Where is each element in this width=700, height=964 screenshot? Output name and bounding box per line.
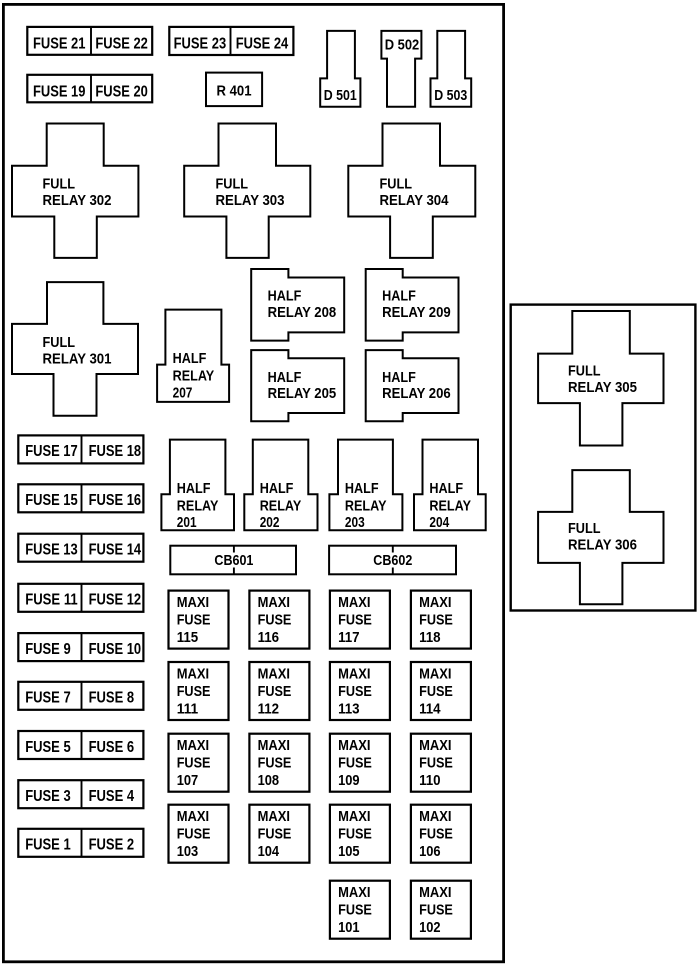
svg-text:CB602: CB602	[373, 552, 412, 569]
svg-text:MAXI: MAXI	[177, 737, 209, 754]
svg-text:MAXI: MAXI	[338, 594, 370, 611]
svg-text:FUSE 20: FUSE 20	[95, 84, 148, 101]
svg-text:RELAY 208: RELAY 208	[268, 304, 337, 321]
svg-text:112: 112	[258, 700, 280, 717]
svg-text:RELAY 301: RELAY 301	[43, 351, 112, 368]
svg-text:FUSE: FUSE	[338, 902, 372, 919]
svg-text:D 501: D 501	[324, 87, 357, 104]
svg-text:MAXI: MAXI	[419, 808, 451, 825]
svg-text:107: 107	[177, 772, 199, 789]
svg-text:FUSE 5: FUSE 5	[25, 739, 71, 756]
svg-text:MAXI: MAXI	[177, 666, 209, 683]
svg-text:RELAY 305: RELAY 305	[568, 379, 637, 396]
svg-text:109: 109	[338, 772, 360, 789]
svg-text:113: 113	[338, 700, 360, 717]
svg-text:FUSE 22: FUSE 22	[95, 35, 148, 52]
svg-text:RELAY: RELAY	[345, 497, 387, 514]
svg-text:202: 202	[260, 514, 280, 531]
svg-text:RELAY: RELAY	[429, 497, 471, 514]
svg-text:FUSE 1: FUSE 1	[25, 837, 71, 854]
svg-text:201: 201	[177, 514, 197, 531]
svg-text:FUSE 15: FUSE 15	[25, 492, 78, 509]
svg-text:FUSE: FUSE	[419, 902, 453, 919]
svg-text:FUSE: FUSE	[338, 683, 372, 700]
svg-text:D 502: D 502	[385, 36, 420, 53]
svg-text:MAXI: MAXI	[419, 884, 451, 901]
svg-text:HALF: HALF	[382, 369, 416, 386]
svg-text:RELAY 209: RELAY 209	[382, 304, 451, 321]
svg-text:FUSE: FUSE	[177, 683, 211, 700]
svg-text:MAXI: MAXI	[338, 737, 370, 754]
svg-text:117: 117	[338, 629, 360, 646]
svg-text:MAXI: MAXI	[177, 594, 209, 611]
svg-text:MAXI: MAXI	[258, 808, 290, 825]
svg-text:108: 108	[258, 772, 280, 789]
svg-text:MAXI: MAXI	[338, 884, 370, 901]
svg-text:HALF: HALF	[429, 480, 463, 497]
svg-text:FUSE 2: FUSE 2	[89, 837, 135, 854]
svg-text:203: 203	[345, 514, 365, 531]
svg-text:HALF: HALF	[268, 369, 302, 386]
svg-text:FUSE: FUSE	[419, 755, 453, 772]
svg-text:MAXI: MAXI	[338, 666, 370, 683]
svg-text:FUSE 11: FUSE 11	[25, 592, 78, 609]
svg-text:FUSE 18: FUSE 18	[89, 443, 142, 460]
svg-text:FUSE 16: FUSE 16	[89, 492, 142, 509]
svg-text:RELAY 302: RELAY 302	[43, 192, 112, 209]
svg-text:RELAY 303: RELAY 303	[216, 192, 285, 209]
svg-text:116: 116	[258, 629, 280, 646]
svg-text:104: 104	[258, 843, 280, 860]
svg-text:FUSE: FUSE	[419, 683, 453, 700]
svg-text:FUSE: FUSE	[258, 683, 292, 700]
svg-text:MAXI: MAXI	[258, 666, 290, 683]
svg-text:FUSE: FUSE	[419, 612, 453, 629]
svg-text:110: 110	[419, 772, 441, 789]
svg-text:FUSE 6: FUSE 6	[89, 739, 135, 756]
svg-text:RELAY: RELAY	[177, 497, 219, 514]
svg-text:D 503: D 503	[434, 87, 467, 104]
svg-text:FUSE: FUSE	[177, 612, 211, 629]
svg-text:FUSE 8: FUSE 8	[89, 690, 135, 707]
svg-text:MAXI: MAXI	[177, 808, 209, 825]
svg-text:RELAY: RELAY	[173, 367, 215, 384]
svg-text:FUSE 13: FUSE 13	[25, 542, 78, 559]
svg-text:101: 101	[338, 919, 360, 936]
svg-text:FUSE: FUSE	[258, 612, 292, 629]
svg-text:MAXI: MAXI	[419, 594, 451, 611]
svg-text:HALF: HALF	[173, 350, 207, 367]
svg-text:RELAY 205: RELAY 205	[268, 385, 337, 402]
svg-text:207: 207	[173, 384, 193, 401]
svg-text:FUSE 23: FUSE 23	[174, 35, 227, 52]
svg-text:105: 105	[338, 843, 360, 860]
svg-text:FUSE: FUSE	[338, 612, 372, 629]
svg-text:FUSE 17: FUSE 17	[25, 443, 77, 460]
svg-text:102: 102	[419, 919, 441, 936]
svg-text:111: 111	[177, 700, 199, 717]
svg-text:114: 114	[419, 700, 441, 717]
svg-text:HALF: HALF	[345, 480, 379, 497]
svg-text:FUSE: FUSE	[258, 755, 292, 772]
svg-text:FUSE 19: FUSE 19	[33, 84, 86, 101]
svg-text:FUSE: FUSE	[177, 755, 211, 772]
svg-text:R 401: R 401	[217, 82, 252, 99]
svg-text:MAXI: MAXI	[258, 594, 290, 611]
svg-text:FUSE 10: FUSE 10	[89, 641, 142, 658]
svg-text:115: 115	[177, 629, 199, 646]
svg-text:FUSE 4: FUSE 4	[89, 788, 135, 805]
svg-text:HALF: HALF	[177, 480, 211, 497]
svg-text:FULL: FULL	[216, 176, 249, 193]
svg-text:FULL: FULL	[43, 176, 76, 193]
svg-text:FUSE 14: FUSE 14	[89, 542, 142, 559]
svg-text:FUSE: FUSE	[419, 826, 453, 843]
svg-text:MAXI: MAXI	[419, 737, 451, 754]
svg-text:MAXI: MAXI	[338, 808, 370, 825]
svg-text:RELAY 304: RELAY 304	[380, 192, 450, 209]
svg-text:CB601: CB601	[214, 552, 253, 569]
svg-text:FULL: FULL	[43, 334, 76, 351]
svg-text:FUSE 7: FUSE 7	[25, 690, 70, 707]
svg-text:HALF: HALF	[260, 480, 294, 497]
svg-text:FUSE: FUSE	[338, 755, 372, 772]
svg-text:118: 118	[419, 629, 441, 646]
svg-text:FULL: FULL	[568, 363, 601, 380]
svg-text:FULL: FULL	[380, 176, 413, 193]
svg-text:RELAY 206: RELAY 206	[382, 385, 451, 402]
svg-text:HALF: HALF	[382, 287, 416, 304]
svg-text:FUSE 21: FUSE 21	[33, 35, 86, 52]
svg-text:FUSE: FUSE	[258, 826, 292, 843]
svg-text:MAXI: MAXI	[419, 666, 451, 683]
svg-text:103: 103	[177, 843, 199, 860]
svg-text:FUSE 3: FUSE 3	[25, 788, 71, 805]
svg-text:HALF: HALF	[268, 287, 302, 304]
svg-text:MAXI: MAXI	[258, 737, 290, 754]
svg-text:FULL: FULL	[568, 520, 601, 537]
svg-text:FUSE 9: FUSE 9	[25, 641, 71, 658]
svg-text:RELAY: RELAY	[260, 497, 302, 514]
svg-text:204: 204	[429, 514, 449, 531]
svg-text:FUSE 24: FUSE 24	[236, 35, 289, 52]
svg-text:RELAY 306: RELAY 306	[568, 537, 637, 554]
svg-text:106: 106	[419, 843, 441, 860]
svg-text:FUSE 12: FUSE 12	[89, 592, 142, 609]
svg-text:FUSE: FUSE	[177, 826, 211, 843]
svg-text:FUSE: FUSE	[338, 826, 372, 843]
